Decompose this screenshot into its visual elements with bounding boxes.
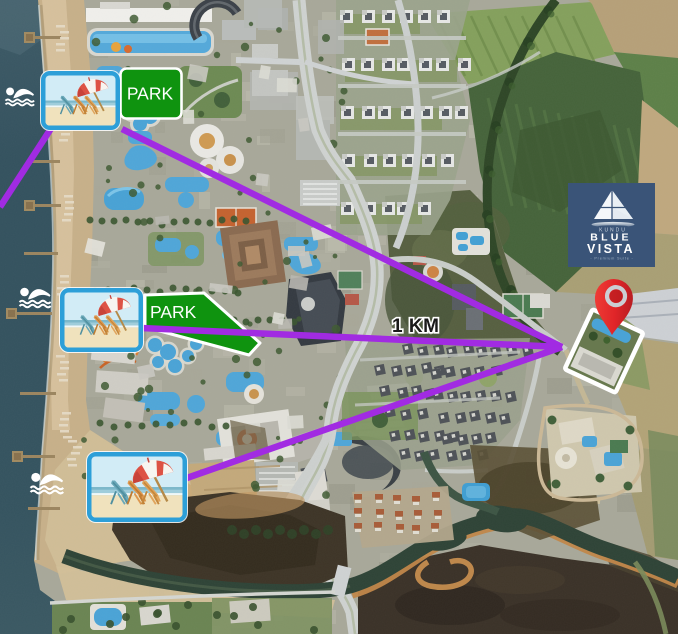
svg-text:PARK: PARK	[150, 302, 197, 322]
svg-text:PARK: PARK	[127, 84, 174, 104]
svg-text:- Premium Suite -: - Premium Suite -	[590, 257, 633, 261]
svg-text:1 KM: 1 KM	[392, 316, 439, 337]
svg-text:VISTA: VISTA	[587, 242, 635, 256]
